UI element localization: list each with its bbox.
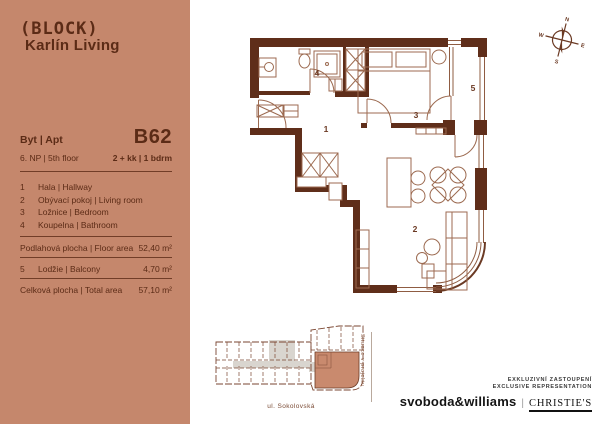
svoboda-williams-logo: svoboda&williams xyxy=(400,394,517,409)
room-number: 1 xyxy=(20,181,38,194)
room-list-item: 2 Obývací pokoj | Living room xyxy=(20,194,172,207)
room-label-bedroom: 3 xyxy=(414,110,419,120)
christies-logo: CHRISTIE'S xyxy=(529,398,592,412)
logo-block: (BLOCK) xyxy=(20,21,120,38)
apartment-row: Byt | Apt B62 xyxy=(20,128,172,146)
plan-furniture xyxy=(257,49,467,290)
layout-label: 2 + kk | 1 bdrm xyxy=(113,153,172,163)
balcony-row: 5 Lodžie | Balcony 4,70 m² xyxy=(20,264,172,274)
room-name: Koupelna | Bathroom xyxy=(38,219,118,232)
floor-area-row: Podlahová plocha | Floor area 52,40 m² xyxy=(20,243,172,253)
armchair xyxy=(424,239,440,255)
room-name: Obývací pokoj | Living room xyxy=(38,194,143,207)
footstool xyxy=(417,253,428,264)
compass-e: E xyxy=(580,43,585,50)
floor-area-label: Podlahová plocha | Floor area xyxy=(20,243,133,253)
balcony-number: 5 xyxy=(20,264,38,274)
kitchen-island xyxy=(387,158,425,207)
total-area-label: Celková plocha | Total area xyxy=(20,285,122,295)
room-list-item: 4 Koupelna | Bathroom xyxy=(20,219,172,232)
balcony-label: Lodžie | Balcony xyxy=(38,264,100,274)
plant xyxy=(432,50,446,64)
representation-label-en: EXCLUSIVE REPRESENTATION xyxy=(400,384,592,391)
compass-s: S xyxy=(554,59,559,66)
plan-windows xyxy=(397,41,485,292)
agency-logos: svoboda&williams | CHRISTIE'S xyxy=(400,394,592,412)
compass-n: N xyxy=(564,17,569,24)
room-name: Hala | Hallway xyxy=(38,181,92,194)
room-name: Ložnice | Bedroom xyxy=(38,206,109,219)
side-divider xyxy=(371,332,372,402)
room-label-bathroom: 4 xyxy=(315,68,320,78)
site-plan xyxy=(213,322,369,402)
total-area-row: Celková plocha | Total area 57,10 m² xyxy=(20,285,172,295)
divider xyxy=(20,171,172,172)
floor-label: 6. NP | 5th floor xyxy=(20,153,79,163)
room-label-hall: 1 xyxy=(324,124,329,134)
dining-table xyxy=(430,167,466,203)
bathroom-fixtures xyxy=(259,49,342,91)
room-label-living: 2 xyxy=(413,224,418,234)
street-label: ul. Sokolovská xyxy=(213,403,369,410)
room-number: 4 xyxy=(20,219,38,232)
divider xyxy=(20,236,172,237)
floorplan-sheet: (BLOCK) Karlín Living Byt | Apt B62 6. N… xyxy=(0,0,600,424)
info-panel: (BLOCK) Karlín Living Byt | Apt B62 6. N… xyxy=(0,0,190,424)
room-number: 3 xyxy=(20,206,38,219)
logo-karlin-living: Karlín Living xyxy=(25,38,120,54)
floor-area-value: 52,40 m² xyxy=(138,243,172,253)
compass-icon: N E S W xyxy=(536,14,588,66)
divider xyxy=(20,278,172,279)
compass-w: W xyxy=(538,32,545,39)
divider xyxy=(20,257,172,258)
room-label-balcony: 5 xyxy=(471,83,476,93)
room-number: 2 xyxy=(20,194,38,207)
floor-plan-drawing: 1 2 3 4 5 xyxy=(230,10,500,320)
total-area-value: 57,10 m² xyxy=(138,285,172,295)
sideboard xyxy=(416,128,446,134)
branding: EXKLUZIVNÍ ZASTOUPENÍ EXCLUSIVE REPRESEN… xyxy=(400,377,592,412)
curved-glass-corner xyxy=(436,242,485,291)
room-list-item: 3 Ložnice | Bedroom xyxy=(20,206,172,219)
floor-row: 6. NP | 5th floor 2 + kk | 1 bdrm xyxy=(20,153,172,163)
room-list: 1 Hala | Hallway 2 Obývací pokoj | Livin… xyxy=(20,181,172,231)
apartment-label: Byt | Apt xyxy=(20,134,63,146)
room-list-item: 1 Hala | Hallway xyxy=(20,181,172,194)
balcony-value: 4,70 m² xyxy=(143,264,172,274)
highlighted-unit xyxy=(315,352,359,388)
site-plan-caption: Situace v projektu xyxy=(359,334,365,406)
logo-separator: | xyxy=(521,398,524,409)
apartment-number: B62 xyxy=(134,128,172,146)
project-logo: (BLOCK) Karlín Living xyxy=(20,21,120,54)
